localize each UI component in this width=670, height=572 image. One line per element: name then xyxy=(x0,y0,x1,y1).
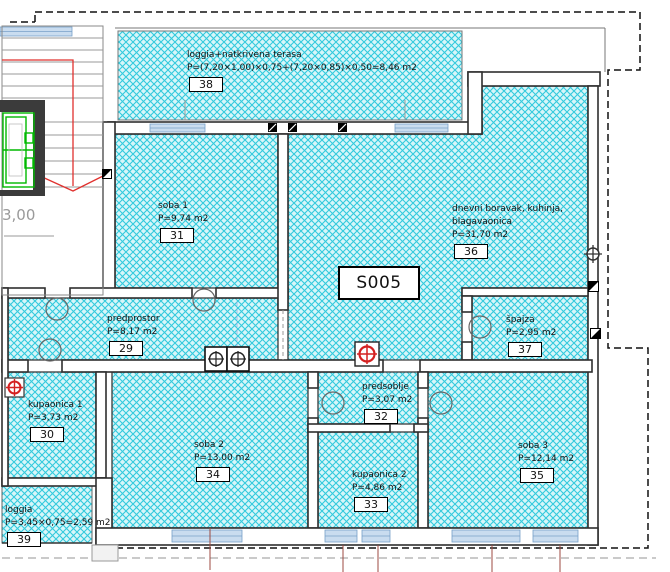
staircase xyxy=(0,26,103,295)
section-marker-icon xyxy=(590,328,601,339)
room-label-living: dnevni boravak, kuhinja, blagavaonica P=… xyxy=(452,203,563,260)
room-name: loggia xyxy=(5,504,111,517)
room-area: P=4,86 m2 xyxy=(352,482,407,495)
room-name: kupaonica 1 xyxy=(28,399,83,412)
section-marker-icon xyxy=(102,169,112,179)
room-number-badge: 38 xyxy=(189,77,223,92)
room-label-soba1: soba 1 P=9,74 m2 31 xyxy=(158,200,208,244)
room-number-badge: 34 xyxy=(196,467,230,482)
room-number-badge: 35 xyxy=(520,468,554,483)
room-name: dnevni boravak, kuhinja, blagavaonica xyxy=(452,203,563,229)
room-number-badge: 29 xyxy=(109,341,143,356)
floor-plan: 3,00 S005 loggia+natkrivena terasa P=(7,… xyxy=(0,0,670,572)
room-number-badge: 30 xyxy=(30,427,64,442)
room-number-badge: 39 xyxy=(7,532,41,547)
unit-label-box: S005 xyxy=(338,266,420,300)
room-area: P=3,73 m2 xyxy=(28,412,83,425)
room-name: špajza xyxy=(506,314,556,327)
room-name: loggia+natkrivena terasa xyxy=(187,49,417,62)
room-label-kupaonica2: kupaonica 2 P=4,86 m2 33 xyxy=(352,469,407,513)
section-marker-icon xyxy=(288,123,297,132)
room-number-badge: 32 xyxy=(364,409,398,424)
room-area: P=(7,20×1,00)×0,75+(7,20×0,85)×0,50=8,46… xyxy=(187,62,417,75)
room-label-kupaonica1: kupaonica 1 P=3,73 m2 30 xyxy=(28,399,83,443)
room-label-soba2: soba 2 P=13,00 m2 34 xyxy=(194,439,250,483)
room-label-predsoblje: predsoblje P=3,07 m2 32 xyxy=(362,381,412,425)
room-number-badge: 37 xyxy=(508,342,542,357)
room-label-terrace: loggia+natkrivena terasa P=(7,20×1,00)×0… xyxy=(187,49,417,93)
room-label-spajza: špajza P=2,95 m2 37 xyxy=(506,314,556,358)
room-label-predprostor: predprostor P=8,17 m2 29 xyxy=(107,313,160,357)
room-area: P=8,17 m2 xyxy=(107,326,160,339)
red-target-marker-left xyxy=(5,378,24,397)
room-number-badge: 36 xyxy=(454,244,488,259)
room-name: kupaonica 2 xyxy=(352,469,407,482)
section-marker-icon xyxy=(338,123,347,132)
room-name: soba 3 xyxy=(518,440,574,453)
room-area: P=2,95 m2 xyxy=(506,327,556,340)
unit-label: S005 xyxy=(356,273,401,293)
stair-direction-arrow xyxy=(2,60,103,191)
room-number-badge: 33 xyxy=(354,497,388,512)
room-area: P=3,07 m2 xyxy=(362,394,412,407)
red-target-marker-center xyxy=(355,342,379,366)
elevator-shaft-wall xyxy=(0,100,45,196)
room-name: predsoblje xyxy=(362,381,412,394)
room-area: P=12,14 m2 xyxy=(518,453,574,466)
room-number-badge: 31 xyxy=(160,228,194,243)
room-name: soba 1 xyxy=(158,200,208,213)
room-area: P=31,70 m2 xyxy=(452,229,563,242)
left-dimension-text: 3,00 xyxy=(2,206,35,224)
section-marker-icon xyxy=(268,123,277,132)
room-area: P=13,00 m2 xyxy=(194,452,250,465)
room-label-soba3: soba 3 P=12,14 m2 35 xyxy=(518,440,574,484)
room-name: soba 2 xyxy=(194,439,250,452)
room-name: predprostor xyxy=(107,313,160,326)
stove-icon xyxy=(205,347,249,371)
room-area: P=9,74 m2 xyxy=(158,213,208,226)
room-label-loggia: loggia P=3,45×0,75=2,59 m2 39 xyxy=(5,504,111,548)
section-marker-icon xyxy=(588,281,599,292)
room-regions xyxy=(2,31,588,543)
room-area: P=3,45×0,75=2,59 m2 xyxy=(5,517,111,530)
